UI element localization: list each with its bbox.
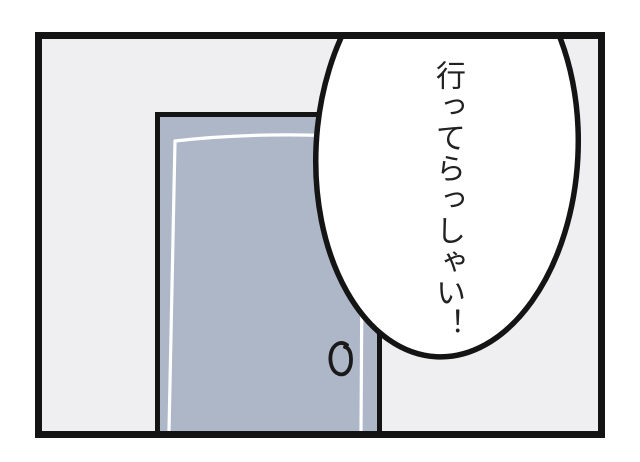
speech-text: 行ってらっしゃい！ — [425, 60, 469, 366]
manga-panel: 行ってらっしゃい！ — [35, 32, 605, 438]
comic-page: 行ってらっしゃい！ — [0, 0, 640, 462]
speech-bubble — [42, 39, 598, 431]
